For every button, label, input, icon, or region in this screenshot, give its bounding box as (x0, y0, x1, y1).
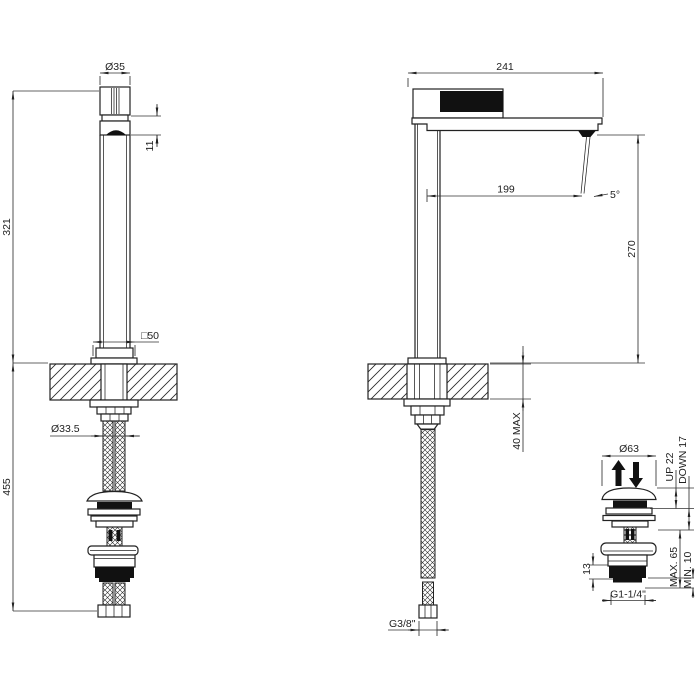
dim-height-above-deck: 321 (1, 218, 13, 236)
drain-cap (602, 488, 656, 500)
drain-thread (609, 566, 646, 578)
dim-deck-hole-diameter: Ø33.5 (51, 423, 80, 435)
drain-flange (601, 543, 656, 555)
aerator-side (578, 131, 596, 138)
dim-length-below-deck: 455 (1, 478, 13, 496)
up-arrow-icon (612, 460, 626, 486)
dim-spout-reach: 199 (497, 184, 515, 196)
dim-stream-angle: 5° (610, 189, 620, 201)
faucet-front-view (50, 87, 177, 617)
popup-waste-detail (601, 460, 656, 583)
front-view-dimensions: Ø35 11 321 455 □50 Ø33.5 (1, 61, 161, 611)
dim-spout-body-height: 11 (144, 140, 156, 151)
handle-front (100, 87, 130, 115)
dim-base-square: □50 (141, 330, 159, 342)
faucet-drawing: Ø35 11 321 455 □50 Ø33.5 (0, 0, 700, 700)
base-plate-side (408, 358, 446, 364)
countertop-side (368, 364, 488, 399)
dim-clamp-min: MIN. 10 (682, 551, 694, 588)
dim-handle-diameter: Ø35 (105, 61, 125, 73)
down-arrow-icon (629, 462, 643, 488)
dim-waste-thread: G1-1/4" (610, 589, 646, 601)
drain-body (608, 555, 647, 566)
dim-spout-height-above-deck: 270 (626, 240, 638, 258)
dim-supply-hose-thread: G3/8" (389, 618, 416, 630)
countertop-front (50, 364, 177, 400)
dim-total-depth: 241 (496, 61, 514, 73)
dim-deck-thickness-max: 40 MAX (511, 412, 523, 449)
dim-thread-band-height: 13 (581, 563, 593, 575)
water-stream (581, 137, 590, 194)
supply-hose-left (103, 421, 113, 491)
handle-recess (440, 91, 503, 112)
base-plate-front (91, 358, 137, 364)
supply-hose-side (421, 429, 435, 578)
technical-drawing-canvas: Ø35 11 321 455 □50 Ø33.5 (0, 0, 700, 700)
dim-clamp-max: MAX. 65 (668, 547, 680, 587)
supply-hose-right (115, 421, 125, 491)
popup-waste-front (87, 492, 142, 618)
hose-end-nut (419, 605, 437, 618)
dim-travel-up: UP 22 (664, 452, 676, 481)
spout-side (412, 118, 602, 131)
faucet-side-view (368, 89, 602, 618)
dim-travel-down: DOWN 17 (677, 436, 689, 484)
dim-cap-diameter: Ø63 (619, 443, 639, 455)
